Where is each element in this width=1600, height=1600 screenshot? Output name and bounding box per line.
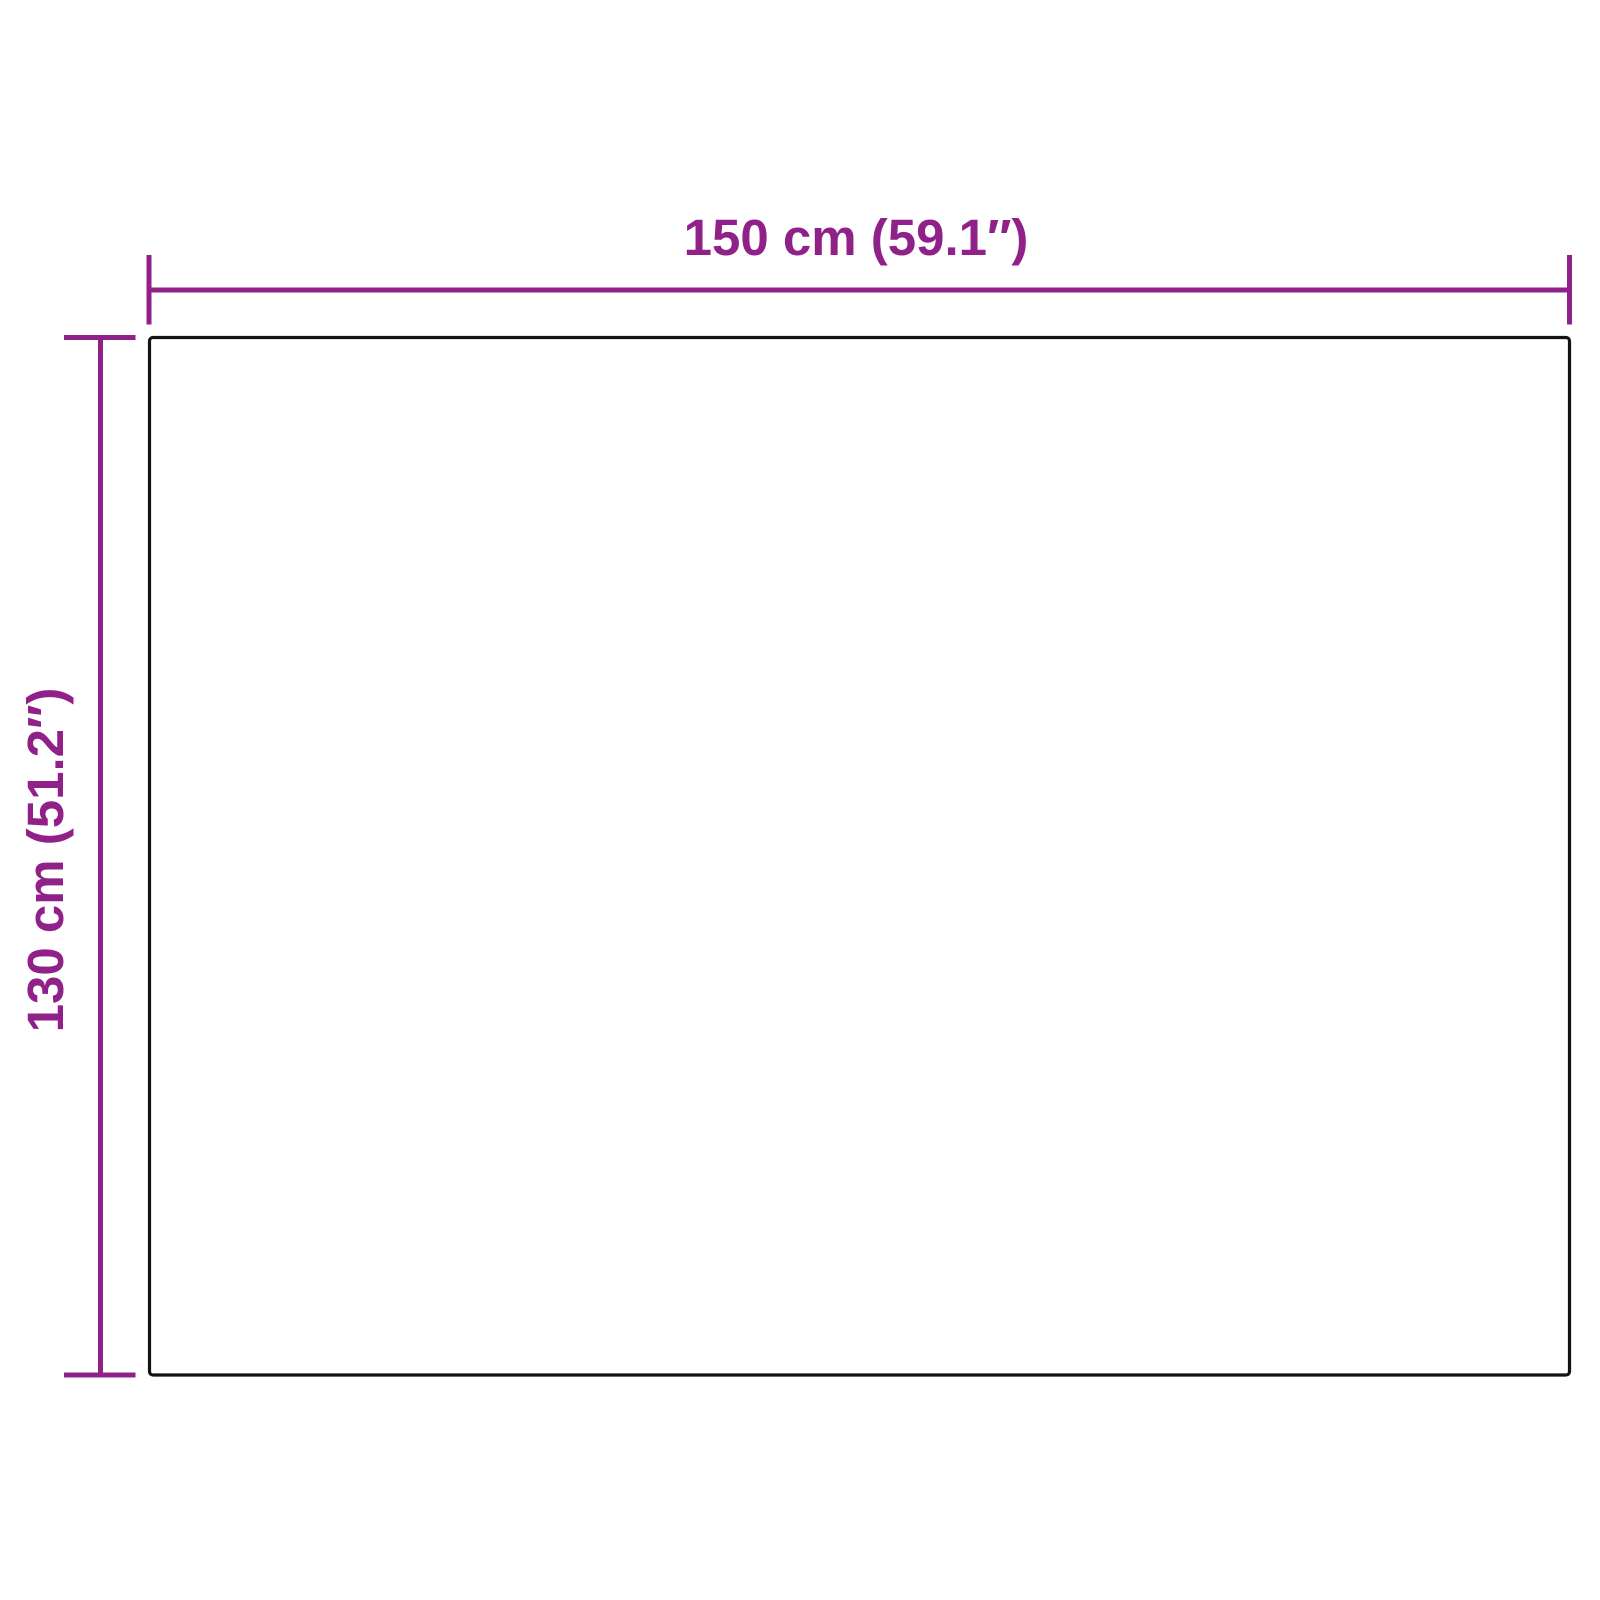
svg-text:130 cm (51.2″): 130 cm (51.2″) — [17, 688, 74, 1033]
svg-text:150 cm (59.1″): 150 cm (59.1″) — [684, 209, 1029, 266]
